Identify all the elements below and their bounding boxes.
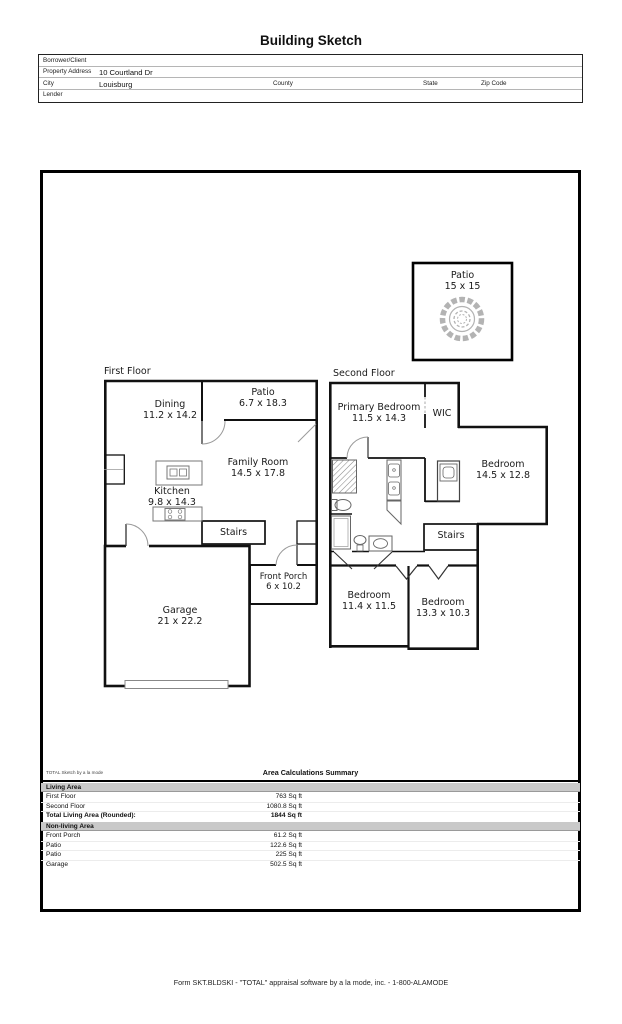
property-address-label: Property Address	[43, 68, 91, 75]
first-floor-title: First Floor	[104, 366, 151, 377]
room-label-kitchen: Kitchen 9.8 x 14.3	[128, 486, 216, 508]
room-dims: 14.5 x 12.8	[459, 470, 547, 481]
summary-row-value-total: 1844 Sq ft	[160, 812, 302, 819]
room-label-garage: Garage 21 x 22.2	[128, 605, 232, 627]
room-label-detached-patio: Patio 15 x 15	[413, 270, 512, 292]
summary-row-label: Front Porch	[46, 832, 80, 839]
property-info-table: Borrower/Client Property Address 10 Cour…	[38, 54, 583, 103]
row-divider	[41, 841, 580, 842]
room-dims: 11.4 x 11.5	[329, 601, 409, 612]
second-floor-title: Second Floor	[333, 368, 395, 379]
room-label-bedroom-right: Bedroom 14.5 x 12.8	[459, 459, 547, 481]
room-label-front-porch: Front Porch 6 x 10.2	[250, 572, 317, 592]
room-name: Bedroom	[329, 590, 409, 601]
page-title: Building Sketch	[0, 33, 622, 48]
room-name: Bedroom	[459, 459, 547, 470]
living-area-header-label: Living Area	[46, 784, 81, 791]
nonliving-area-header: Non-living Area	[41, 822, 580, 831]
summary-row-value: 763 Sq ft	[160, 793, 302, 800]
room-name: Primary Bedroom	[331, 402, 427, 413]
room-label-sf-stairs: Stairs	[424, 530, 478, 541]
row-divider	[41, 850, 580, 851]
city-label: City	[43, 80, 54, 87]
room-label-ff-patio: Patio 6.7 x 18.3	[210, 387, 316, 409]
room-dims: 6.7 x 18.3	[210, 398, 316, 409]
summary-row-value: 1080.8 Sq ft	[160, 803, 302, 810]
room-name: Patio	[210, 387, 316, 398]
room-name: Family Room	[202, 457, 314, 468]
summary-row-label-total: Total Living Area (Rounded):	[46, 812, 136, 819]
room-label-family-room: Family Room 14.5 x 17.8	[202, 457, 314, 479]
room-name: Bedroom	[406, 597, 480, 608]
summary-row-label: Garage	[46, 861, 68, 868]
city-value: Louisburg	[99, 80, 132, 89]
room-label-primary-bedroom: Primary Bedroom 11.5 x 14.3	[331, 402, 427, 424]
room-dims: 15 x 15	[413, 281, 512, 292]
table-row-city: City Louisburg County State Zip Code	[39, 78, 582, 90]
table-row-lender: Lender	[39, 90, 582, 102]
nonliving-area-header-label: Non-living Area	[46, 823, 94, 830]
room-name: Garage	[128, 605, 232, 616]
form-footer: Form SKT.BLDSKI - "TOTAL" appraisal soft…	[0, 978, 622, 987]
room-dims: 9.8 x 14.3	[128, 497, 216, 508]
summary-row-label: Patio	[46, 842, 61, 849]
room-dims: 13.3 x 10.3	[406, 608, 480, 619]
room-label-bedroom-left: Bedroom 11.4 x 11.5	[329, 590, 409, 612]
room-name: Front Porch	[250, 572, 317, 582]
property-address-value: 10 Courtland Dr	[99, 68, 153, 77]
room-label-dining: Dining 11.2 x 14.2	[122, 399, 218, 421]
zip-code-label: Zip Code	[481, 80, 507, 87]
row-divider	[41, 860, 580, 861]
summary-row-value: 61.2 Sq ft	[160, 832, 302, 839]
table-row-property-address: Property Address 10 Courtland Dr	[39, 67, 582, 79]
summary-row-value: 225 Sq ft	[160, 851, 302, 858]
living-area-header: Living Area	[41, 783, 580, 792]
room-name: Dining	[122, 399, 218, 410]
area-calculations-title: Area Calculations Summary	[40, 768, 581, 777]
state-label: State	[423, 80, 438, 87]
summary-row-label: Patio	[46, 851, 61, 858]
lender-label: Lender	[43, 91, 63, 98]
room-name: Patio	[413, 270, 512, 281]
county-label: County	[273, 80, 293, 87]
room-name: Kitchen	[128, 486, 216, 497]
room-dims: 11.2 x 14.2	[122, 410, 218, 421]
room-label-ff-stairs: Stairs	[202, 527, 265, 538]
summary-row-value: 502.5 Sq ft	[160, 861, 302, 868]
summary-row-label: Second Floor	[46, 803, 85, 810]
building-sketch-page: Building Sketch Borrower/Client Property…	[0, 0, 622, 1024]
borrower-label: Borrower/Client	[43, 57, 86, 64]
table-row-borrower: Borrower/Client	[39, 55, 582, 67]
summary-row-label: First Floor	[46, 793, 76, 800]
room-dims: 14.5 x 17.8	[202, 468, 314, 479]
room-dims: 21 x 22.2	[128, 616, 232, 627]
row-divider	[41, 802, 580, 803]
summary-row-value: 122.6 Sq ft	[160, 842, 302, 849]
room-label-bedroom-center: Bedroom 13.3 x 10.3	[406, 597, 480, 619]
room-label-wic: WIC	[426, 408, 458, 419]
room-dims: 11.5 x 14.3	[331, 413, 427, 424]
room-dims: 6 x 10.2	[250, 582, 317, 592]
